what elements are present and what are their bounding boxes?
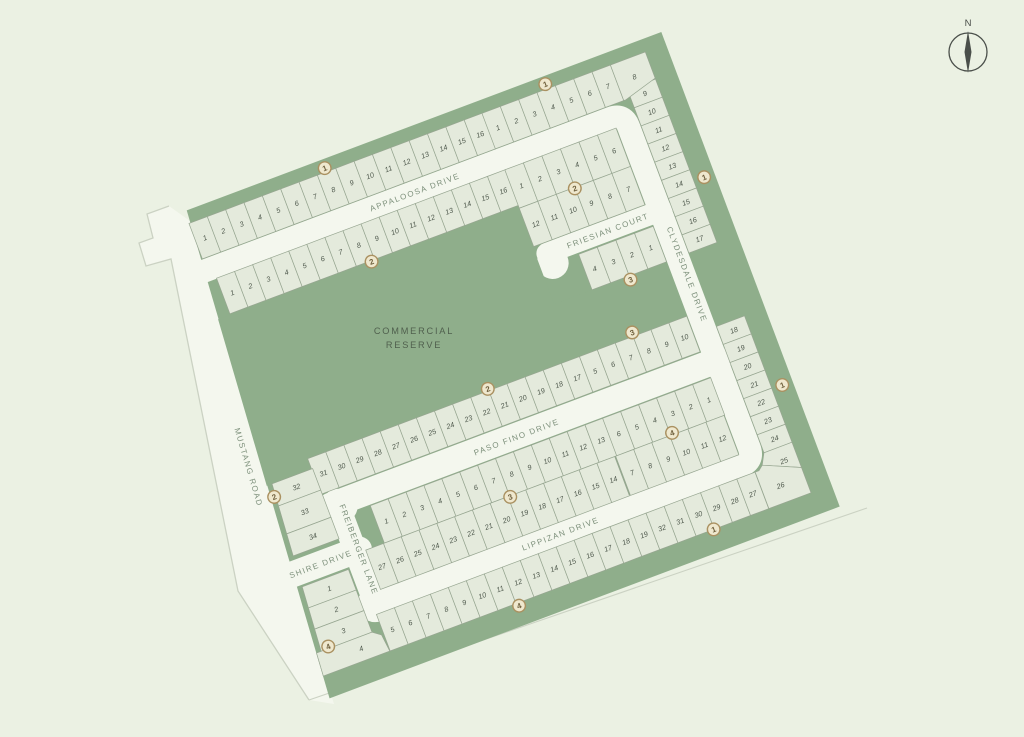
plat-map-svg: 1234567891011121314151612345679101112131… (0, 0, 1024, 737)
north-arrow-hub (965, 49, 970, 54)
plat-map: 1234567891011121314151612345679101112131… (0, 0, 1024, 737)
north-label: N (965, 18, 972, 29)
